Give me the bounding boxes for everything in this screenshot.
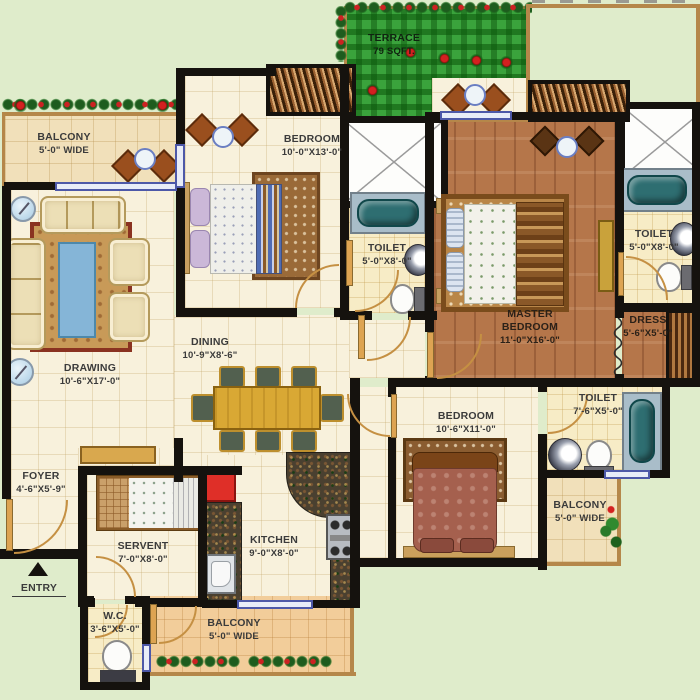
sofa-icon	[6, 238, 46, 350]
round-table-icon	[212, 126, 234, 148]
door-leaf	[358, 315, 365, 359]
room-name: TERRACE	[352, 32, 436, 45]
bedroom-bottom-label: BEDROOM 10'-6"X11'-0"	[416, 410, 516, 436]
room-dims: 9'-0"X8'-0"	[224, 547, 324, 560]
pillow-icon	[460, 538, 494, 553]
room-dims: 5'-6"X5'-0"	[608, 327, 688, 340]
wall-segment	[648, 470, 670, 478]
bed-pillow	[173, 478, 200, 528]
entry-text: ENTRY	[21, 582, 57, 594]
dining-chair-icon	[291, 366, 317, 388]
room-dims: 79 SQFT.	[352, 45, 436, 58]
wall-segment	[388, 378, 670, 387]
wall-segment	[662, 378, 670, 478]
room-dims: 5'-0" WIDE	[540, 512, 620, 525]
room-name: TOILET	[346, 242, 428, 255]
toilet-tank	[414, 287, 425, 312]
double-bed-icon	[210, 184, 258, 274]
room-dims: 10'-0"X13'-0"	[262, 146, 362, 159]
compass-icon	[10, 196, 36, 222]
window	[175, 144, 185, 188]
dining-label: DINING 10'-9"X8'-6"	[168, 336, 252, 362]
room-name: FOYER	[8, 470, 74, 483]
blanket-icon	[256, 184, 282, 274]
room-name: W.C.	[88, 610, 142, 623]
toilet-right-label: TOILET 5'-0"X8'-0"	[614, 228, 694, 254]
wall-segment	[176, 68, 276, 76]
flower-icon	[156, 99, 169, 112]
dining-chair-icon	[219, 430, 245, 452]
terrace-flower-icon	[366, 84, 379, 97]
double-bed-icon	[464, 204, 516, 304]
terrace-flower-icon	[500, 56, 513, 69]
room-dims: 10'-9"X8'-6"	[168, 349, 252, 362]
room-dims: 5'-0" WIDE	[18, 144, 110, 157]
dining-chair-icon	[191, 394, 215, 422]
open-terrace-border-right	[696, 4, 700, 106]
wall-segment	[350, 558, 547, 567]
wall-segment	[538, 378, 547, 392]
room-dims: 5'-0" WIDE	[184, 630, 284, 643]
dress-label: DRESS 5'-6"X5'-0"	[608, 314, 688, 340]
pillow-icon	[420, 538, 454, 553]
dining-table-icon	[213, 386, 321, 430]
balcony-br-border	[540, 562, 621, 566]
round-table-icon	[134, 148, 156, 170]
door-leaf	[6, 499, 13, 551]
master-bedroom-label: MASTER BEDROOM 11'-0"X16'-0"	[482, 308, 578, 347]
room-dims: 10'-6"X17'-0"	[44, 375, 136, 388]
flower-icon	[14, 99, 27, 112]
dining-chair-icon	[291, 430, 317, 452]
drawing-label: DRAWING 10'-6"X17'-0"	[44, 362, 136, 388]
room-name: BALCONY	[18, 131, 110, 144]
single-bed-icon	[96, 475, 202, 531]
room-name: SERVENT	[93, 540, 193, 553]
entry-label: ENTRY	[12, 582, 66, 597]
toilet-icon	[102, 640, 132, 672]
compass-needle	[18, 202, 29, 215]
armchair-icon	[108, 292, 150, 342]
open-terrace-dash	[532, 0, 700, 3]
pillow-icon	[446, 208, 464, 248]
room-dims: 7'-0"X8'-0"	[93, 553, 193, 566]
terrace-label: TERRACE 79 SQFT.	[352, 32, 436, 58]
door-leaf	[150, 604, 157, 644]
toilet-br-label: TOILET 7'-6"X5'-0"	[556, 392, 640, 418]
room-name: BEDROOM	[262, 133, 362, 146]
wash-basin-icon	[548, 438, 582, 472]
entry-arrow-icon	[28, 562, 48, 576]
flower-garland-icon	[334, 6, 348, 62]
door-leaf	[391, 394, 397, 438]
room-name: TOILET	[614, 228, 694, 241]
flower-garland-icon	[344, 0, 532, 15]
round-table-icon	[464, 84, 486, 106]
room-name: TOILET	[556, 392, 640, 405]
wall-segment	[311, 600, 358, 608]
balcony-tl-border	[2, 112, 5, 186]
room-name: MASTER BEDROOM	[502, 308, 558, 333]
pillow-icon	[446, 252, 464, 292]
foyer-label: FOYER 4'-6"X5'-9"	[8, 470, 74, 496]
room-name: DRAWING	[44, 362, 136, 375]
wall-segment	[198, 466, 207, 606]
balcony-tl-label: BALCONY 5'-0" WIDE	[18, 131, 110, 157]
balcony-tl-border	[2, 112, 184, 116]
room-name: DRESS	[608, 314, 688, 327]
door-leaf	[427, 332, 434, 378]
window	[440, 111, 512, 120]
dining-chair-icon	[255, 366, 281, 388]
wall-segment	[4, 182, 57, 190]
sofa-icon	[40, 196, 126, 234]
pillow-icon	[190, 230, 210, 268]
wall-segment	[78, 466, 242, 475]
bed-pillow-plaid	[99, 478, 129, 528]
dining-chair-icon	[255, 430, 281, 452]
compass-needle	[15, 365, 27, 379]
open-terrace-border-top	[526, 4, 700, 8]
room-name: BALCONY	[540, 499, 620, 512]
bedroom-top-label: BEDROOM 10'-0"X13'-0"	[262, 133, 362, 159]
kitchen-sink-icon	[206, 554, 236, 594]
window	[142, 644, 151, 672]
window	[604, 470, 650, 479]
terrace-flower-icon	[438, 52, 451, 65]
sideboard-icon	[80, 446, 156, 464]
balcony-bottom-label: BALCONY 5'-0" WIDE	[184, 617, 284, 643]
balcony-br-label: BALCONY 5'-0" WIDE	[540, 499, 620, 525]
wall-segment	[618, 303, 700, 312]
kitchen-label: KITCHEN 9'-0"X8'-0"	[224, 534, 324, 560]
room-dims: 4'-6"X5'-9"	[8, 483, 74, 496]
room-name: KITCHEN	[224, 534, 324, 547]
bathtub-icon	[627, 175, 687, 205]
servant-label: SERVENT 7'-0"X8'-0"	[93, 540, 193, 566]
wall-segment	[80, 682, 150, 690]
wall-segment	[174, 438, 183, 482]
dresser-icon	[598, 220, 614, 292]
wall-segment	[202, 600, 239, 608]
room-name: BEDROOM	[416, 410, 516, 423]
terrace-flower-icon	[470, 54, 483, 67]
room-dims: 11'-0"X16'-0"	[482, 334, 578, 347]
toilet-tank	[100, 670, 136, 682]
floor-plan: BALCONY 5'-0" WIDE BEDROOM 10'-0"X13'-0"…	[0, 0, 700, 700]
wall-segment	[388, 437, 396, 567]
wall-segment	[80, 596, 94, 604]
wall-segment	[425, 112, 434, 332]
toilet-tank	[681, 265, 692, 290]
armchair-icon	[108, 238, 150, 286]
room-name: DINING	[168, 336, 252, 349]
wc-label: W.C. 3'-6"X5'-0"	[88, 610, 142, 636]
ornate-runner-icon	[516, 202, 564, 306]
room-name: BALCONY	[184, 617, 284, 630]
window	[55, 182, 177, 191]
door-leaf	[618, 252, 624, 296]
drawing-carpet-center	[58, 242, 96, 338]
room-dims: 5'-0"X8'-0"	[614, 241, 694, 254]
sink-bowl	[211, 561, 231, 587]
flower-garland-icon	[156, 654, 240, 669]
room-dims: 3'-6"X5'-0"	[88, 623, 142, 636]
bathtub-icon	[357, 199, 419, 227]
wall-segment	[125, 596, 150, 604]
round-table-icon	[556, 136, 578, 158]
wall-segment	[2, 186, 11, 499]
balcony-bottom-border	[146, 672, 356, 676]
toilet-mid-label: TOILET 5'-0"X8'-0"	[346, 242, 428, 268]
room-dims: 7'-6"X5'-0"	[556, 405, 640, 418]
wall-segment	[545, 470, 606, 478]
pillow-icon	[190, 188, 210, 226]
balcony-bottom-border	[350, 598, 354, 676]
room-dims: 5'-0"X8'-0"	[346, 255, 428, 268]
wall-segment	[80, 596, 88, 690]
dining-chair-icon	[320, 394, 344, 422]
flower-garland-icon	[248, 654, 332, 669]
dining-chair-icon	[219, 366, 245, 388]
wall-segment	[176, 68, 185, 315]
bed-sheet	[129, 478, 173, 528]
room-dims: 10'-6"X11'-0"	[416, 423, 516, 436]
wall-segment	[176, 308, 297, 317]
window	[237, 600, 313, 609]
wall-segment	[78, 466, 87, 607]
wall-segment	[142, 670, 150, 690]
